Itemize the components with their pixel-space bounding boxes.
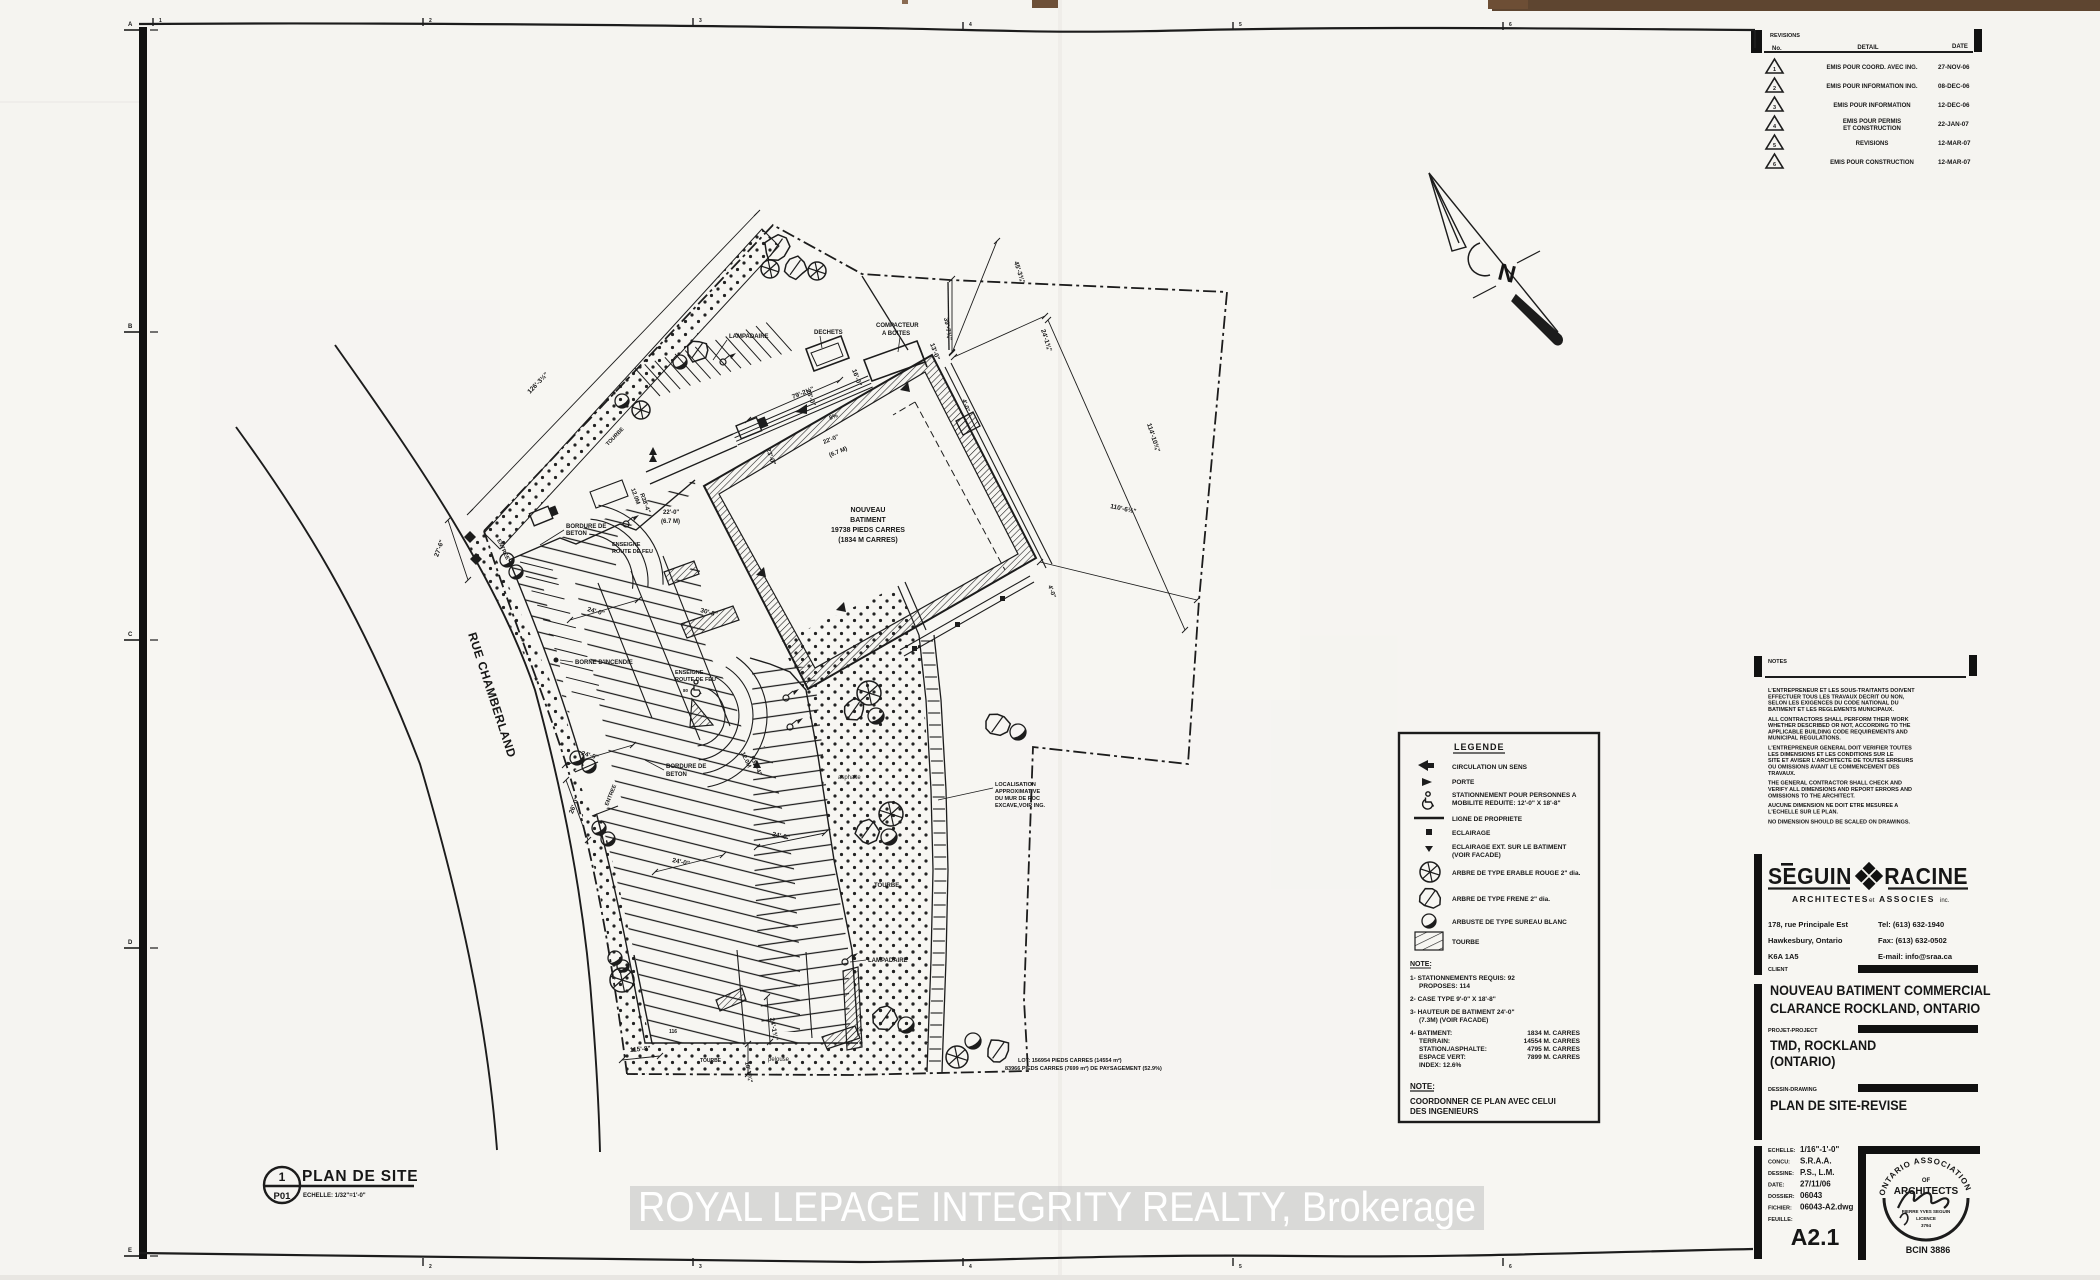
svg-text:(ONTARIO): (ONTARIO) xyxy=(1770,1053,1835,1069)
svg-text:STATION./ASPHALTE:: STATION./ASPHALTE: xyxy=(1419,1046,1487,1053)
svg-text:3- HAUTEUR DE BATIMENT 24'-0": 3- HAUTEUR DE BATIMENT 24'-0" xyxy=(1410,1009,1515,1016)
svg-text:VERIFY ALL DIMENSIONS AND REPO: VERIFY ALL DIMENSIONS AND REPORT ERRORS … xyxy=(1768,787,1912,793)
svg-text:Fax: (613) 632-0502: Fax: (613) 632-0502 xyxy=(1878,936,1947,945)
svg-text:PROPOSES: 114: PROPOSES: 114 xyxy=(1419,983,1470,990)
svg-text:LICENCE: LICENCE xyxy=(1916,1216,1936,1221)
svg-text:ROUTE DE FEU: ROUTE DE FEU xyxy=(612,549,653,555)
svg-text:CIRCULATION UN SENS: CIRCULATION UN SENS xyxy=(1452,764,1528,771)
svg-text:4: 4 xyxy=(969,1264,972,1270)
svg-text:LIGNE DE PROPRIETE: LIGNE DE PROPRIETE xyxy=(1452,816,1523,823)
svg-text:ALL CONTRACTORS SHALL PERFORM: ALL CONTRACTORS SHALL PERFORM THEIR WORK xyxy=(1768,717,1909,723)
svg-text:5: 5 xyxy=(1239,1264,1242,1270)
svg-text:08-DEC-06: 08-DEC-06 xyxy=(1938,83,1970,90)
svg-text:4: 4 xyxy=(969,22,972,28)
svg-text:L'ENTREPRENEUR ET LES SOUS-TRA: L'ENTREPRENEUR ET LES SOUS-TRAITANTS DOI… xyxy=(1768,688,1915,694)
svg-text:EMIS POUR PERMIS: EMIS POUR PERMIS xyxy=(1843,119,1901,125)
svg-text:B: B xyxy=(128,324,133,330)
svg-text:19738 PIEDS CARRES: 19738 PIEDS CARRES xyxy=(831,527,905,534)
svg-text:INDEX: 12.6%: INDEX: 12.6% xyxy=(1419,1062,1461,1069)
svg-text:2- CASE TYPE 9'-0" X 18'-8": 2- CASE TYPE 9'-0" X 18'-8" xyxy=(1410,996,1496,1003)
svg-text:SEGUIN: SEGUIN xyxy=(1768,863,1852,889)
svg-text:DATE: DATE xyxy=(1952,44,1968,50)
svg-text:DESSINE:: DESSINE: xyxy=(1768,1171,1794,1177)
svg-text:asphalte: asphalte xyxy=(838,775,861,781)
svg-text:LAMPADAIRE: LAMPADAIRE xyxy=(729,334,769,340)
svg-text:116: 116 xyxy=(669,1029,677,1035)
svg-text:1834 M. CARRES: 1834 M. CARRES xyxy=(1527,1030,1580,1037)
svg-text:NOTE:: NOTE: xyxy=(1410,1082,1435,1091)
svg-text:L'ENTREPRENEUR GENERAL DOIT VE: L'ENTREPRENEUR GENERAL DOIT VERIFIER TOU… xyxy=(1768,746,1912,752)
svg-text:AUCUNE DIMENSION NE DOIT ETRE: AUCUNE DIMENSION NE DOIT ETRE MESUREE A xyxy=(1768,803,1898,809)
svg-text:NO DIMENSION SHOULD BE SCALED: NO DIMENSION SHOULD BE SCALED ON DRAWING… xyxy=(1768,819,1911,825)
svg-text:DETAIL: DETAIL xyxy=(1857,45,1879,51)
svg-text:EMIS POUR INFORMATION ING.: EMIS POUR INFORMATION ING. xyxy=(1826,84,1918,90)
svg-text:WHETHER DESCRIBED OR NOT, ACCO: WHETHER DESCRIBED OR NOT, ACCORDING TO T… xyxy=(1768,723,1911,729)
svg-text:OU OMISSIONS AVANT LE COMMENCE: OU OMISSIONS AVANT LE COMMENCEMENT DES xyxy=(1768,765,1900,771)
svg-text:83966 PIEDS CARRES (7699 m²) D: 83966 PIEDS CARRES (7699 m²) DE PAYSAGEM… xyxy=(1005,1065,1162,1072)
svg-text:APPROXIMATIVE: APPROXIMATIVE xyxy=(995,789,1040,795)
svg-text:LES DIMENSIONS ET LES CONDITIO: LES DIMENSIONS ET LES CONDITIONS SUR LE xyxy=(1768,752,1894,758)
svg-text:1: 1 xyxy=(159,18,162,24)
svg-text:inc.: inc. xyxy=(1940,898,1950,904)
svg-text:1: 1 xyxy=(1773,67,1776,73)
svg-text:4795 M. CARRES: 4795 M. CARRES xyxy=(1527,1046,1580,1053)
svg-text:2: 2 xyxy=(429,1264,432,1270)
svg-text:EMIS POUR CONSTRUCTION: EMIS POUR CONSTRUCTION xyxy=(1830,160,1914,166)
svg-text:BORNE D'INCENDIE: BORNE D'INCENDIE xyxy=(575,660,633,666)
svg-text:CLARANCE ROCKLAND, ONTARIO: CLARANCE ROCKLAND, ONTARIO xyxy=(1770,1000,1980,1016)
svg-text:27-NOV-06: 27-NOV-06 xyxy=(1938,64,1970,71)
svg-text:BETON: BETON xyxy=(566,531,587,537)
svg-text:ARBUSTE DE TYPE SUREAU BLANC: ARBUSTE DE TYPE SUREAU BLANC xyxy=(1452,919,1567,926)
svg-text:Tel: (613) 632-1940: Tel: (613) 632-1940 xyxy=(1878,920,1944,929)
svg-text:REVISIONS: REVISIONS xyxy=(1856,141,1889,147)
svg-text:ECHELLE:: ECHELLE: xyxy=(1768,1148,1796,1154)
svg-text:DATE:: DATE: xyxy=(1768,1183,1785,1189)
svg-text:D: D xyxy=(128,940,133,946)
svg-text:FEUILLE:: FEUILLE: xyxy=(1768,1217,1793,1223)
svg-text:REVISIONS: REVISIONS xyxy=(1770,33,1800,39)
svg-text:BATIMENT ET LES REGLEMENTS MUN: BATIMENT ET LES REGLEMENTS MUNICIPAUX. xyxy=(1768,707,1894,713)
svg-text:BATIMENT: BATIMENT xyxy=(850,517,886,524)
svg-text:ARBRE DE TYPE ERABLE ROUGE 2": ARBRE DE TYPE ERABLE ROUGE 2" dia. xyxy=(1452,870,1581,877)
svg-text:3: 3 xyxy=(1773,105,1776,111)
svg-text:80: 80 xyxy=(683,688,689,693)
svg-text:BORDURE DE: BORDURE DE xyxy=(666,764,706,770)
svg-text:LOT: 156954 PIEDS CARRES (1455: LOT: 156954 PIEDS CARRES (14554 m²) xyxy=(1018,1057,1122,1064)
svg-text:06043: 06043 xyxy=(1800,1191,1823,1200)
svg-text:EXCAVE,VOIR ING.: EXCAVE,VOIR ING. xyxy=(995,803,1045,809)
svg-text:DES INGENIEURS: DES INGENIEURS xyxy=(1410,1107,1479,1116)
svg-text:5: 5 xyxy=(1773,143,1776,149)
svg-text:EMIS POUR COORD. AVEC ING.: EMIS POUR COORD. AVEC ING. xyxy=(1826,65,1917,71)
svg-text:SITE ET AVISER L'ARCHITECTE DE: SITE ET AVISER L'ARCHITECTE DE TOUTES ER… xyxy=(1768,758,1913,764)
svg-text:3794: 3794 xyxy=(1921,1223,1932,1228)
svg-text:A: A xyxy=(128,22,133,28)
svg-text:L'ECHELLE SUR LE PLAN.: L'ECHELLE SUR LE PLAN. xyxy=(1768,810,1839,816)
svg-text:C: C xyxy=(128,632,133,638)
svg-text:22-JAN-07: 22-JAN-07 xyxy=(1938,121,1969,128)
svg-text:PLAN DE SITE-REVISE: PLAN DE SITE-REVISE xyxy=(1770,1097,1907,1113)
svg-text:NOTE:: NOTE: xyxy=(1410,961,1432,968)
svg-text:1: 1 xyxy=(279,1170,286,1184)
svg-text:ARBRE DE TYPE FRENE 2" dia.: ARBRE DE TYPE FRENE 2" dia. xyxy=(1452,896,1550,903)
svg-text:LAMPADAIRE: LAMPADAIRE xyxy=(868,958,908,964)
svg-text:DU MUR DE ROC: DU MUR DE ROC xyxy=(995,796,1040,802)
svg-text:FICHIER:: FICHIER: xyxy=(1768,1206,1792,1212)
svg-text:7899 M. CARRES: 7899 M. CARRES xyxy=(1527,1054,1580,1061)
svg-text:COORDONNER CE PLAN AVEC CELUI: COORDONNER CE PLAN AVEC CELUI xyxy=(1410,1097,1556,1106)
svg-text:E-mail: info@sraa.ca: E-mail: info@sraa.ca xyxy=(1878,952,1953,961)
svg-text:APPLICABLE BUILDING CODE REQUI: APPLICABLE BUILDING CODE REQUIREMENTS AN… xyxy=(1768,729,1908,735)
svg-text:(7.3M) (VOIR FACADE): (7.3M) (VOIR FACADE) xyxy=(1419,1017,1488,1024)
svg-text:OF: OF xyxy=(1922,1178,1931,1184)
svg-text:178, rue Principale Est: 178, rue Principale Est xyxy=(1768,920,1849,929)
svg-text:(1834 M CARRES): (1834 M CARRES) xyxy=(838,537,898,544)
svg-text:ECHELLE: 1/32"=1'-0": ECHELLE: 1/32"=1'-0" xyxy=(303,1193,366,1199)
svg-text:12-DEC-06: 12-DEC-06 xyxy=(1938,102,1970,109)
svg-text:DESSIN-DRAWING: DESSIN-DRAWING xyxy=(1768,1087,1817,1093)
svg-text:P.S., L.M.: P.S., L.M. xyxy=(1800,1168,1835,1177)
svg-text:MOBILITE REDUITE: 12'-0" X 18': MOBILITE REDUITE: 12'-0" X 18'-8" xyxy=(1452,800,1561,807)
svg-text:MUNICIPAL REGULATIONS.: MUNICIPAL REGULATIONS. xyxy=(1768,736,1841,742)
svg-text:SELON LES EXIGENCES DU CODE NA: SELON LES EXIGENCES DU CODE NATIONAL DU xyxy=(1768,701,1899,707)
svg-text:BETON: BETON xyxy=(666,772,687,778)
svg-text:ECLAIRAGE: ECLAIRAGE xyxy=(1452,830,1491,837)
svg-text:NOUVEAU: NOUVEAU xyxy=(850,507,885,514)
svg-text:12-MAR-07: 12-MAR-07 xyxy=(1938,159,1971,166)
svg-text:27/11/06: 27/11/06 xyxy=(1800,1180,1831,1189)
svg-text:3: 3 xyxy=(699,18,702,24)
svg-text:ENSEIGNE: ENSEIGNE xyxy=(612,542,641,548)
svg-text:6: 6 xyxy=(1509,22,1512,28)
svg-text:1- STATIONNEMENTS REQUIS: 92: 1- STATIONNEMENTS REQUIS: 92 xyxy=(1410,975,1515,982)
svg-text:6: 6 xyxy=(1773,162,1776,168)
svg-text:TERRAIN:: TERRAIN: xyxy=(1419,1038,1450,1045)
svg-text:ECLAIRAGE EXT. SUR LE BATIMENT: ECLAIRAGE EXT. SUR LE BATIMENT xyxy=(1452,844,1566,851)
svg-text:ET CONSTRUCTION: ET CONSTRUCTION xyxy=(1843,126,1901,132)
svg-text:TMD, ROCKLAND: TMD, ROCKLAND xyxy=(1770,1037,1877,1053)
svg-text:A2.1: A2.1 xyxy=(1791,1224,1840,1250)
svg-text:NOUVEAU BATIMENT COMMERCIAL: NOUVEAU BATIMENT COMMERCIAL xyxy=(1770,982,1991,998)
svg-text:ASSOCIES: ASSOCIES xyxy=(1879,894,1935,904)
svg-text:COMPACTEUR: COMPACTEUR xyxy=(876,323,919,329)
svg-text:A BOITES: A BOITES xyxy=(882,331,910,337)
svg-text:5: 5 xyxy=(1239,22,1242,28)
svg-text:THE GENERAL CONTRACTOR SHALL C: THE GENERAL CONTRACTOR SHALL CHECK AND xyxy=(1768,781,1902,787)
svg-text:RACINE: RACINE xyxy=(1884,863,1968,889)
svg-text:K6A 1A5: K6A 1A5 xyxy=(1768,952,1799,961)
svg-text:P01: P01 xyxy=(274,1191,292,1202)
svg-text:PLAN DE SITE: PLAN DE SITE xyxy=(302,1168,418,1185)
svg-text:EMIS POUR INFORMATION: EMIS POUR INFORMATION xyxy=(1833,103,1910,109)
svg-text:4- BATIMENT:: 4- BATIMENT: xyxy=(1410,1030,1452,1037)
svg-text:ROUTE DE FEU: ROUTE DE FEU xyxy=(675,677,716,683)
svg-text:BCIN 3886: BCIN 3886 xyxy=(1906,1245,1951,1255)
svg-text:PROJET-PROJECT: PROJET-PROJECT xyxy=(1768,1028,1818,1034)
svg-text:ENSEIGNE: ENSEIGNE xyxy=(675,670,704,676)
svg-text:22'-0": 22'-0" xyxy=(663,510,679,516)
svg-text:ARCHITECTES: ARCHITECTES xyxy=(1792,894,1869,904)
svg-text:ESPACE VERT:: ESPACE VERT: xyxy=(1419,1054,1466,1061)
svg-text:TRAVAUX.: TRAVAUX. xyxy=(1768,771,1796,777)
svg-text:CLIENT: CLIENT xyxy=(1768,967,1789,973)
svg-text:STATIONNEMENT POUR PERSONNES A: STATIONNEMENT POUR PERSONNES A xyxy=(1452,792,1577,799)
svg-text:LEGENDE: LEGENDE xyxy=(1454,742,1505,752)
svg-text:06043-A2.dwg: 06043-A2.dwg xyxy=(1800,1203,1853,1212)
svg-text:DECHETS: DECHETS xyxy=(814,330,843,336)
svg-text:OMISSIONS TO THE ARCHITECT.: OMISSIONS TO THE ARCHITECT. xyxy=(1768,793,1855,799)
svg-text:DOSSIER:: DOSSIER: xyxy=(1768,1194,1795,1200)
svg-text:(VOIR FACADE): (VOIR FACADE) xyxy=(1452,852,1501,859)
svg-text:CONCU:: CONCU: xyxy=(1768,1160,1790,1166)
svg-text:ARCHITECTS: ARCHITECTS xyxy=(1894,1186,1959,1197)
svg-text:14554 M. CARRES: 14554 M. CARRES xyxy=(1524,1038,1581,1045)
svg-text:TOURBE: TOURBE xyxy=(700,1058,722,1064)
svg-text:et: et xyxy=(1869,897,1875,904)
svg-text:2: 2 xyxy=(429,18,432,24)
svg-text:TOURBE: TOURBE xyxy=(874,883,899,889)
svg-text:12-MAR-07: 12-MAR-07 xyxy=(1938,140,1971,147)
svg-text:pelouse: pelouse xyxy=(768,1057,790,1063)
svg-text:PIERRE YVES SEGUIN: PIERRE YVES SEGUIN xyxy=(1902,1209,1950,1214)
svg-text:TOURBE: TOURBE xyxy=(1452,939,1480,946)
svg-text:PORTE: PORTE xyxy=(1452,779,1475,786)
svg-text:NOTES: NOTES xyxy=(1768,659,1787,665)
svg-text:BORDURE DE: BORDURE DE xyxy=(566,524,606,530)
svg-text:3: 3 xyxy=(699,1264,702,1270)
svg-text:6: 6 xyxy=(1509,1264,1512,1270)
svg-text:E: E xyxy=(128,1248,132,1254)
svg-text:2: 2 xyxy=(1773,86,1776,92)
svg-text:EFFECTUER TOUS LES TRAVAUX DEC: EFFECTUER TOUS LES TRAVAUX DECRIT OU NON… xyxy=(1768,694,1905,700)
svg-text:(6.7 M): (6.7 M) xyxy=(661,519,680,525)
svg-text:S.R.A.A.: S.R.A.A. xyxy=(1800,1157,1832,1166)
svg-text:LOCALISATION: LOCALISATION xyxy=(995,782,1036,788)
svg-text:ROYAL LEPAGE INTEGRITY REALTY,: ROYAL LEPAGE INTEGRITY REALTY, Brokerage xyxy=(638,1183,1476,1230)
svg-text:1/16"-1'-0": 1/16"-1'-0" xyxy=(1800,1145,1839,1154)
svg-text:Hawkesbury, Ontario: Hawkesbury, Ontario xyxy=(1768,936,1843,945)
